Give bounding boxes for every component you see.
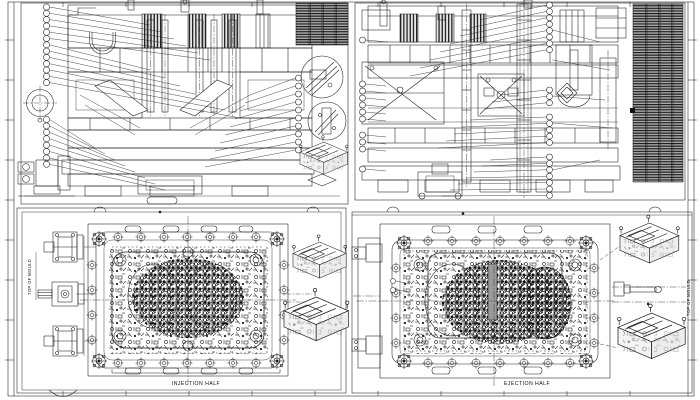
detail-circle-b: [308, 102, 346, 140]
balloon-callouts-center: [547, 2, 553, 198]
dimension-bracket: [112, 369, 280, 373]
top-of-mould-annotation-left: TOP OF MOULD: [27, 252, 36, 300]
side-clamp-assemblies: [352, 244, 410, 354]
balloon-callouts-left-upper: [43, 4, 49, 86]
bottom-clamp-assembly: [418, 164, 462, 199]
mold-plate-stack: [24, 5, 340, 204]
hatch-block-right: [630, 4, 683, 182]
plan-view-injection-half: TOP OF MOULD INJECTION HALF: [17, 207, 349, 397]
top-of-mould-label-right: TOP OF MOULD: [686, 280, 691, 316]
section-view-top-right: [355, 0, 685, 200]
section-view-top-left: [18, 0, 348, 204]
truss-bracing: [362, 62, 444, 124]
locating-ring: [23, 86, 57, 122]
isometric-view-lower: [283, 288, 349, 340]
drawing-canvas: TOP OF MOULD INJECTION HALF: [0, 0, 700, 400]
detail-circle-a: [301, 56, 343, 98]
plan-view-ejection-half: TOP OF MOULD EJECTION HALF: [352, 207, 692, 393]
ejector-rod: [612, 282, 686, 305]
hatch-block-top-right: [296, 3, 348, 45]
side-clamp-assemblies: [38, 232, 96, 356]
leader-lines-left: [366, 40, 389, 171]
right-cavity-section: [556, 8, 626, 150]
balloon-callouts-right: [296, 75, 302, 153]
cad-drawing-sheet: TOP OF MOULD INJECTION HALF: [0, 0, 700, 400]
isometric-view-upper: [619, 215, 679, 263]
isometric-view-upper: [293, 235, 347, 278]
top-of-mould-label-left: TOP OF MOULD: [27, 259, 32, 295]
injection-half-label: INJECTION HALF: [172, 381, 220, 387]
isometric-view-lower: [617, 304, 685, 359]
balloon-callouts-left: [360, 37, 366, 172]
isometric-detail-small: [300, 136, 348, 186]
cavity-detail-texture: [402, 250, 588, 354]
ejection-half-label: EJECTION HALF: [504, 381, 550, 387]
